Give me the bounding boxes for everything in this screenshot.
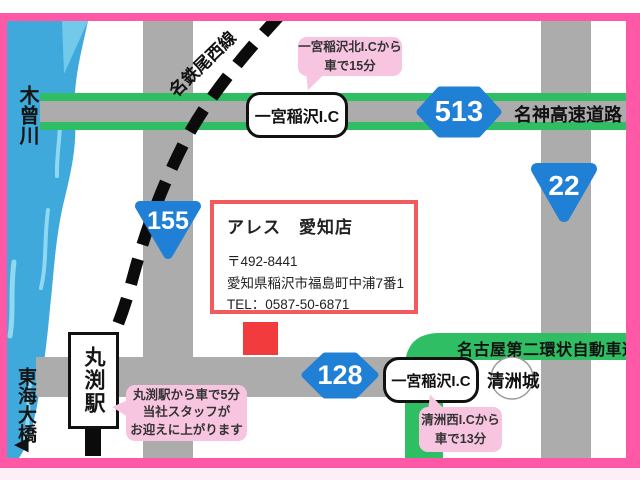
station-label: 丸渕駅 xyxy=(83,346,104,415)
ic-box-top-label: 一宮稲沢I.C xyxy=(255,103,339,127)
bubble-kiyosu-ic-tail xyxy=(426,393,443,410)
castle-label: 清洲城 xyxy=(487,368,540,393)
shop-info-box: アレス 愛知店 〒492-8441 愛知県稲沢市福島町中浦7番1 TEL：058… xyxy=(210,200,418,314)
bubble-kiyosu-ic-line2: 車で13分 xyxy=(419,430,502,448)
route-badge-22-number: 22 xyxy=(534,172,594,200)
bubble-north-ic-line2: 車で15分 xyxy=(298,57,402,75)
access-map: 155 22 513 128 木曾川 東海大橋 ◀ 名鉄尾西線 名神高速道路 名… xyxy=(0,0,640,480)
bubble-station-pickup: 丸渕駅から車で5分 当社スタッフが お迎えに上がります xyxy=(126,385,247,441)
road-vertical-east xyxy=(541,21,591,458)
location-marker xyxy=(243,322,278,355)
expressway-label: 名神高速道路 xyxy=(514,101,622,127)
bubble-north-ic-line1: 一宮稲沢北I.Cから xyxy=(298,38,402,56)
map-frame-bottom xyxy=(0,458,640,468)
shop-address: 愛知県稲沢市福島町中浦7番1 xyxy=(227,273,414,295)
outer-margin-top xyxy=(0,0,640,13)
bubble-station-pickup-line2: 当社スタッフが xyxy=(126,404,247,422)
bubble-north-ic: 一宮稲沢北I.Cから 車で15分 xyxy=(298,37,402,76)
route-badge-128-number: 128 xyxy=(303,362,377,389)
bubble-station-pickup-line1: 丸渕駅から車で5分 xyxy=(126,387,247,405)
shop-name: アレス 愛知店 xyxy=(227,213,414,238)
outer-margin-bottom xyxy=(0,468,640,480)
river-highlight-3 xyxy=(10,262,14,336)
river-label: 木曾川 xyxy=(17,85,37,145)
bubble-kiyosu-ic-line1: 清洲西I.Cから xyxy=(419,411,502,429)
shop-phone: TEL：0587-50-6871 xyxy=(227,294,414,316)
bridge-label: 東海大橋 xyxy=(16,367,35,443)
shop-postal-code: 〒492-8441 xyxy=(227,251,414,273)
ic-box-bottom-label: 一宮稲沢I.C xyxy=(391,370,470,391)
map-frame-top xyxy=(0,13,640,21)
route-badge-155-number: 155 xyxy=(138,209,198,234)
bubble-station-pickup-tail xyxy=(112,400,128,417)
map-frame-right xyxy=(626,13,640,468)
map-frame-left xyxy=(0,13,7,468)
ring-road-label: 名古屋第二環状自動車道 xyxy=(457,336,639,360)
bubble-station-pickup-line3: お迎えに上がります xyxy=(126,422,247,440)
route-badge-513-number: 513 xyxy=(417,98,501,127)
bubble-kiyosu-ic: 清洲西I.Cから 車で13分 xyxy=(419,407,502,452)
bubble-north-ic-tail xyxy=(304,73,323,92)
bridge-arrow-icon: ◀ xyxy=(14,433,29,456)
ic-box-top: 一宮稲沢I.C xyxy=(246,92,348,138)
